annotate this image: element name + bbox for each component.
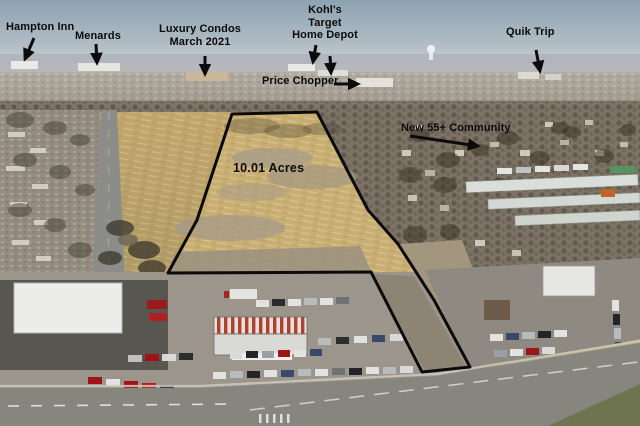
white-building-left (14, 283, 122, 333)
orange-container (601, 189, 615, 197)
arrow-price-chopper-down (330, 56, 331, 73)
mobile-home-park-left (0, 110, 100, 285)
arrow-menards (96, 44, 97, 63)
label-acreage: 10.01 Acres (233, 161, 304, 175)
photo-scene (0, 0, 640, 426)
dealership-building (214, 317, 307, 360)
label-new-55-community: New 55+ Community (401, 122, 511, 135)
semi-trailer (230, 289, 257, 299)
label-quik-trip: Quik Trip (506, 26, 555, 39)
aerial-photo: Hampton Inn Menards Luxury Condos March … (0, 0, 640, 426)
label-hampton-inn: Hampton Inn (6, 21, 74, 34)
label-luxury-condos: Luxury Condos March 2021 (159, 23, 241, 48)
white-building-right (543, 266, 595, 296)
label-price-chopper: Price Chopper (262, 75, 339, 88)
shed (484, 300, 510, 320)
label-kohls-target-home-depot: Kohl's Target Home Depot (292, 4, 358, 42)
label-menards: Menards (75, 30, 121, 43)
